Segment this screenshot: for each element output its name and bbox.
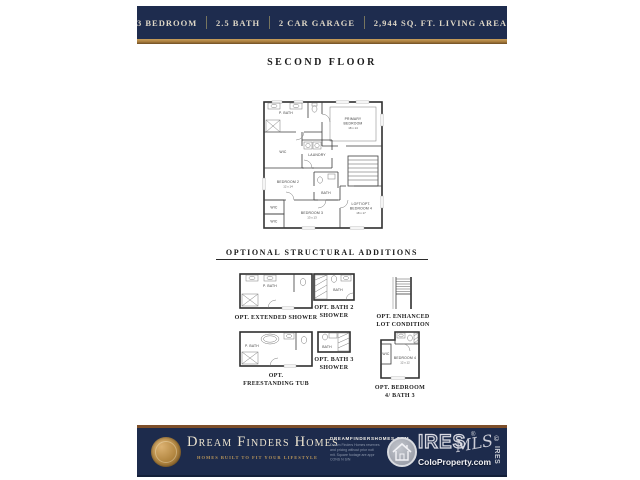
- spec-divider: [206, 16, 207, 29]
- footer-disclaimer: Dream Finders Homes reserves and pricing…: [330, 443, 395, 463]
- room-label-primary-1: PRIMARY: [345, 117, 362, 121]
- spec-divider: [269, 16, 270, 29]
- room-label-bedroom2: BEDROOM 2: [277, 180, 299, 184]
- option-caption: OPT. FREESTANDING TUB: [243, 373, 309, 388]
- option-enhanced-lot: OPT. ENHANCED LOT CONDITION: [372, 275, 434, 329]
- spec-garage: 2 CAR GARAGE: [279, 18, 355, 28]
- room-label-opt2: BATH: [333, 288, 343, 292]
- footer-bar: Dream Finders Homes HOMES BUILT TO FIT Y…: [137, 428, 507, 477]
- option-enhanced-lot-drawing: [387, 275, 419, 311]
- option-bedroom4-bath3: WIC BEDROOM 4 12 x 12 OPT. BEDROOM 4/ BA…: [362, 330, 438, 400]
- ires-house-icon: [387, 437, 417, 467]
- room-dim-bedroom2: 12 x 14: [283, 185, 293, 189]
- spec-divider: [364, 16, 365, 29]
- room-label-opt4: P. BATH: [245, 344, 259, 348]
- disclaimer-line: CONS N S/N: [330, 458, 395, 463]
- option-caption: OPT. BATH 3 SHOWER: [309, 357, 359, 372]
- room-dim-opt6: 12 x 12: [400, 361, 410, 365]
- option-bath3-shower: BATH OPT. BATH 3 SHOWER: [306, 330, 362, 372]
- room-label-loft-2: BEDROOM 4: [350, 207, 372, 211]
- room-label-wic-b: WIC: [270, 220, 278, 224]
- second-floor-title: SECOND FLOOR: [137, 57, 507, 68]
- option-caption: OPT. BEDROOM 4/ BATH 3: [372, 385, 428, 400]
- room-dim-primary: 18 x 14: [348, 126, 358, 130]
- spec-baths: 2.5 BATH: [216, 18, 260, 28]
- gold-accent-stripe: [137, 39, 507, 44]
- room-label-opt6: BEDROOM 4: [394, 356, 416, 360]
- room-label-p-bath: P. BATH: [279, 111, 293, 115]
- second-floor-plan-drawing: P. BATH WIC LAUNDRY PRIMARY BEDROOM 18 x…: [250, 94, 398, 237]
- room-dim-loft: 18 x 17: [356, 211, 366, 215]
- room-label-bedroom3: BEDROOM 3: [301, 211, 323, 215]
- option-caption: OPT. ENHANCED LOT CONDITION: [374, 314, 432, 329]
- room-label-opt5: BATH: [322, 345, 332, 349]
- option-caption: OPT. BATH 2 SHOWER: [308, 305, 360, 320]
- room-label-bath2: BATH: [321, 191, 331, 195]
- brand-name: Dream Finders Homes: [187, 434, 339, 451]
- room-label-wic-primary: WIC: [279, 150, 287, 154]
- spec-sqft: 2,944 SQ. FT. LIVING AREA: [374, 18, 507, 28]
- room-label-laundry: LAUNDRY: [308, 153, 326, 157]
- room-dim-bedroom3: 13 x 13: [307, 216, 317, 220]
- room-label-wic-a: WIC: [270, 206, 278, 210]
- option-freestanding-tub-drawing: P. BATH: [238, 330, 314, 370]
- ires-copyright: © IRES: [493, 436, 500, 464]
- options-title: OPTIONAL STRUCTURAL ADDITIONS: [216, 248, 428, 260]
- room-label-opt6-wic: WIC: [382, 352, 390, 356]
- brand-seal-logo: [151, 437, 181, 467]
- room-label-primary-2: BEDROOM: [344, 122, 363, 126]
- flyer-page: 3 BEDROOM 2.5 BATH 2 CAR GARAGE 2,944 SQ…: [0, 0, 640, 480]
- spec-bedrooms: 3 BEDROOM: [137, 18, 197, 28]
- spec-banner: 3 BEDROOM 2.5 BATH 2 CAR GARAGE 2,944 SQ…: [137, 6, 507, 39]
- brand-tagline: HOMES BUILT TO FIT YOUR LIFESTYLE: [197, 455, 318, 460]
- option-bath2-shower: BATH OPT. BATH 2 SHOWER: [306, 272, 362, 320]
- option-bedroom4-bath3-drawing: WIC BEDROOM 4 12 x 12: [376, 330, 424, 382]
- room-label-loft-1: LOFT/OPT.: [352, 202, 371, 206]
- room-label-opt1: P. BATH: [263, 284, 277, 288]
- coloproperty-text: ColoProperty.com: [418, 457, 491, 467]
- option-bath2-shower-drawing: BATH: [311, 272, 357, 302]
- options-section: OPTIONAL STRUCTURAL ADDITIONS: [137, 242, 507, 260]
- option-bath3-shower-drawing: BATH: [315, 330, 353, 354]
- option-extended-shower-drawing: P. BATH: [238, 272, 314, 312]
